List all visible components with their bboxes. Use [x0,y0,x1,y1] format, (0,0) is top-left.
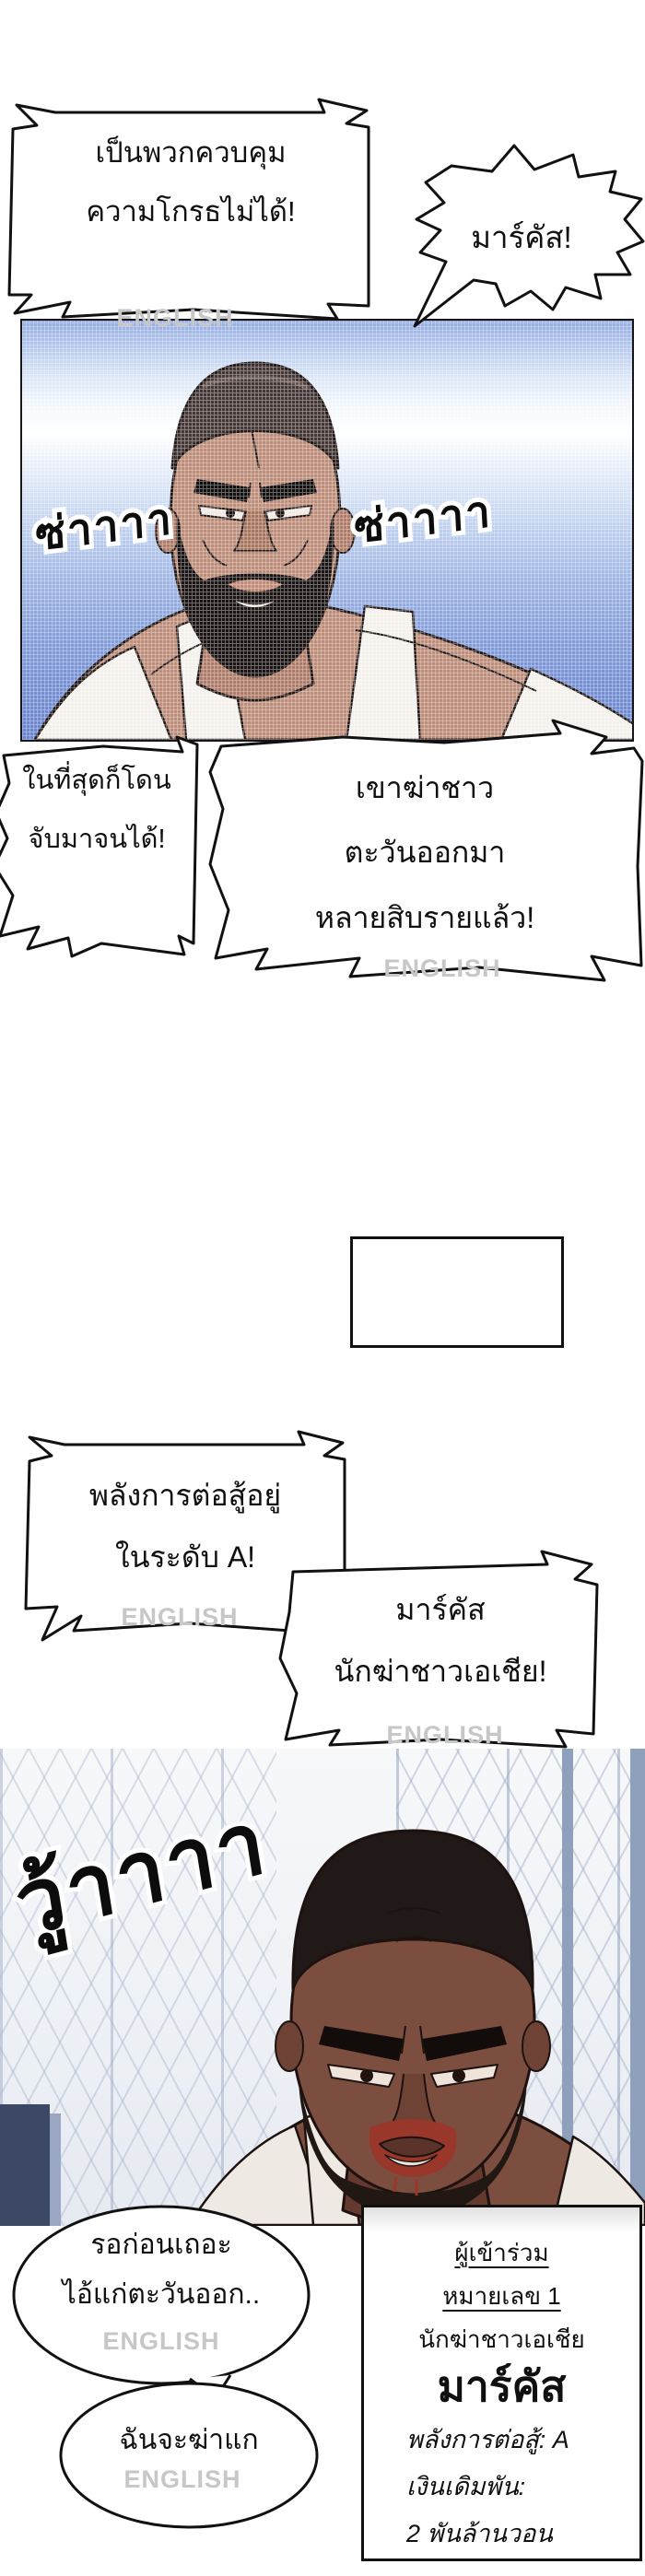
webtoon-page: ซ่าาาา ซ่าาาา ซ่าาาา ซ่าาาา เป็นพวกควบคุ… [0,0,645,2576]
empty-caption-box [350,1236,564,1348]
participant-number: หมายเลข 1 [364,2278,639,2314]
panel-1: ซ่าาาา ซ่าาาา ซ่าาาา ซ่าาาา [20,319,634,742]
participant-power-stat: พลังการต่อสู้: A [364,2418,639,2462]
participant-info-box: ผู้เข้าร่วม หมายเลข 1 นักฆ่าชาวเอเชีย มา… [361,2205,642,2561]
speech-bubble-finally-caught: ในที่สุดก็โดน จับมาจนได้! [0,730,201,960]
bubble-marcus-shout-text: มาร์คัส! [396,206,645,269]
bubble-kill-you-text: ฉันจะฆ่าแก [57,2412,321,2469]
bubble-wait-old-man-text: รอก่อนเถอะ ไอ้แก่ตะวันออก.. [9,2220,313,2320]
speech-bubble-marcus-shout: มาร์คัส! [396,135,645,330]
bubble-anger-text: เป็นพวกควบคุม ความโกรธไม่ได้! [4,123,378,240]
translator-watermark: ENGLISH [95,2465,270,2494]
speech-bubble-anger: เป็นพวกควบคุม ความโกรธไม่ได้! [4,96,378,322]
participant-name: มาร์คัส [364,2359,639,2415]
bubble-finally-caught-text: ในที่สุดก็โดน จับมาจนได้! [0,752,201,870]
participant-bet-value: 2 พันล้านวอน [364,2512,639,2556]
speech-bubble-wait-old-man: รอก่อนเถอะ ไอ้แก่ตะวันออก.. [9,2204,313,2399]
translator-watermark: ENGLISH [88,304,263,333]
translator-watermark: ENGLISH [355,954,530,983]
participant-label: ผู้เข้าร่วม [364,2235,639,2271]
infobox-overlay-strip [364,2207,639,2231]
bubble-marcus-title-text: มาร์คัส นักฆ่าชาวเอเชีย! [275,1579,606,1703]
speech-bubble-kill-you: ฉันจะฆ่าแก [57,2381,321,2530]
bubble-killed-many-text: เขาฆ่าชาว ตะวันออกมา หลายสิบรายแล้ว! [205,755,645,950]
participant-subtitle: นักฆ่าชาวเอเชีย [364,2322,639,2358]
participant-bet-label: เงินเดิมพัน: [364,2465,639,2509]
translator-watermark: ENGLISH [358,1721,533,1750]
panel-2: วู้าาาา วู้าาาา [0,1749,645,2226]
translator-watermark: ENGLISH [74,2327,249,2356]
translator-watermark: ENGLISH [92,1603,267,1632]
